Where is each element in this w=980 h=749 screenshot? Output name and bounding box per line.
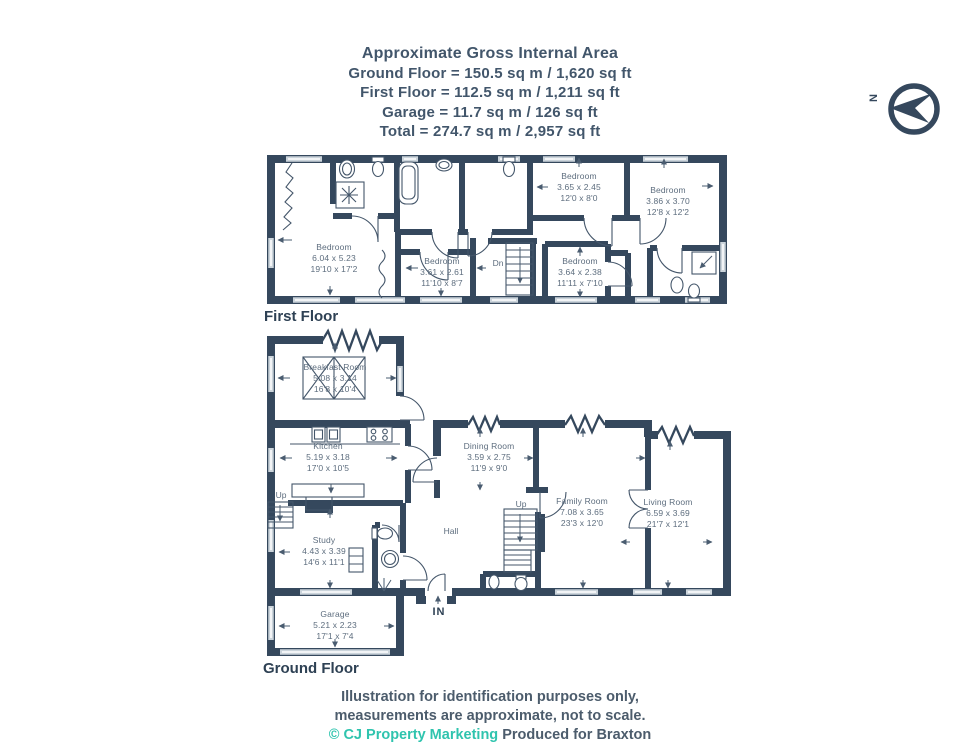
room-label-bedroom-5: Bedroom3.64 x 2.3811'11 x 7'10 bbox=[557, 256, 603, 290]
compass-icon: N bbox=[868, 86, 937, 132]
room-label-study: Study4.43 x 3.3914'6 x 11'1 bbox=[302, 535, 346, 569]
credit-produced-for: Produced for Braxton bbox=[502, 727, 651, 743]
sink-icon bbox=[489, 575, 499, 589]
room-label-dining-room: Dining Room3.59 x 2.7511'9 x 9'0 bbox=[464, 441, 515, 475]
entrance-label: IN bbox=[433, 606, 446, 618]
stairs-down-label: Dn bbox=[493, 258, 504, 268]
room-label-kitchen: Kitchen5.19 x 3.1817'0 x 10'5 bbox=[306, 441, 350, 475]
ground-floor-title: Ground Floor bbox=[263, 660, 359, 677]
hall-label: Hall bbox=[444, 526, 459, 536]
counter-icon bbox=[292, 484, 364, 497]
credit-company: © CJ Property Marketing bbox=[329, 727, 498, 743]
credit-line: © CJ Property Marketing Produced for Bra… bbox=[0, 726, 980, 745]
room-label-bedroom-4: Bedroom3.86 x 3.7012'8 x 12'2 bbox=[646, 185, 690, 219]
stairs-up-main-label: Up bbox=[516, 499, 527, 509]
room-label-garage: Garage5.21 x 2.2317'1 x 7'4 bbox=[313, 609, 357, 643]
main-stairs-icon bbox=[504, 509, 537, 572]
first-floor-stairs-icon bbox=[506, 243, 533, 295]
first-floor-title: First Floor bbox=[264, 308, 338, 325]
room-label-bedroom-1: Bedroom6.04 x 5.2319'10 x 17'2 bbox=[310, 242, 357, 276]
radiator-icon bbox=[349, 548, 363, 572]
room-label-breakfast-room: Breakfast Room5.08 x 3.1416'8 x 10'4 bbox=[303, 362, 366, 396]
kitchen-sink-icon bbox=[312, 427, 340, 442]
footer-disclaimer: Illustration for identification purposes… bbox=[0, 688, 980, 745]
room-label-bedroom-2: Bedroom3.61 x 2.6111'10 x 8'7 bbox=[420, 256, 464, 290]
svg-text:N: N bbox=[868, 94, 880, 102]
shower-icon bbox=[692, 252, 716, 274]
floorplan-canvas: N bbox=[0, 0, 980, 749]
room-label-family-room: Family Room7.08 x 3.6523'3 x 12'0 bbox=[556, 496, 608, 530]
toilet-icon bbox=[688, 298, 700, 302]
sink-icon bbox=[671, 277, 683, 293]
hob-icon bbox=[367, 427, 392, 442]
disclaimer-line-2: measurements are approximate, not to sca… bbox=[0, 707, 980, 726]
first-floor-walls bbox=[267, 155, 727, 304]
disclaimer-line-1: Illustration for identification purposes… bbox=[0, 688, 980, 707]
floorplan-page: Approximate Gross Internal Area Ground F… bbox=[0, 0, 980, 749]
room-label-bedroom-3: Bedroom3.65 x 2.4512'0 x 8'0 bbox=[557, 171, 601, 205]
stairs-up-side-label: Up bbox=[276, 490, 287, 500]
room-label-living-room: Living Room6.59 x 3.6921'7 x 12'1 bbox=[644, 497, 693, 531]
toilet-icon bbox=[372, 528, 377, 539]
